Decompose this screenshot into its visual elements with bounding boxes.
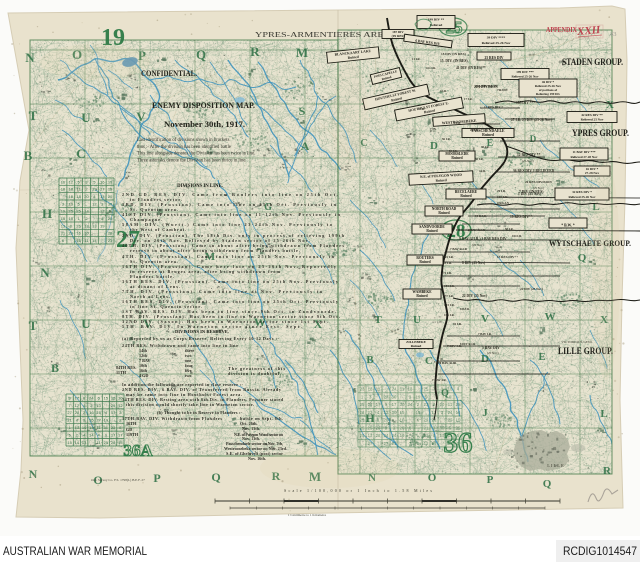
svg-text:2 BAV R.I.R: 2 BAV R.I.R	[468, 228, 486, 232]
svg-text:Relieved 25-26 Nov: Relieved 25-26 Nov	[568, 195, 595, 199]
svg-text:15: 15	[400, 410, 405, 415]
svg-text:17TH BAV. DIV. Withdrawn from: 17TH BAV. DIV. Withdrawn from Flanders	[122, 416, 222, 421]
svg-text:25: 25	[360, 425, 365, 430]
svg-text:30: 30	[440, 402, 445, 407]
svg-text:(26 Nov): (26 Nov)	[503, 261, 514, 265]
svg-text:42 RES DIV **: 42 RES DIV **	[581, 113, 603, 117]
svg-text:* B.W. *: * B.W. *	[561, 223, 575, 227]
svg-text:two: two	[185, 373, 192, 378]
svg-text:18: 18	[368, 387, 373, 392]
svg-text:B: B	[24, 148, 33, 163]
svg-text:11: 11	[448, 402, 453, 407]
svg-text:25 RES DIV: 25 RES DIV	[485, 56, 504, 60]
svg-text:22: 22	[111, 425, 115, 430]
svg-text:30 I.R.: 30 I.R.	[481, 145, 490, 149]
svg-text:11: 11	[400, 387, 405, 392]
svg-text:41 DIV (IN RES)**: 41 DIV (IN RES)**	[456, 66, 486, 70]
svg-text:8 DIV R.I.R: 8 DIV R.I.R	[460, 342, 476, 346]
svg-text:T: T	[374, 314, 382, 326]
svg-text:Ruined: Ruined	[419, 260, 430, 264]
svg-text:E: E	[538, 351, 545, 363]
svg-text:AUSTRALIAN WAR MEMORIAL: AUSTRALIAN WAR MEMORIAL	[3, 546, 148, 558]
svg-text:27: 27	[384, 394, 389, 399]
svg-text:U: U	[413, 314, 421, 326]
svg-text:Q: Q	[578, 252, 587, 264]
svg-text:13: 13	[89, 425, 94, 430]
svg-text:100 I.R.: 100 I.R.	[497, 195, 508, 199]
svg-text:21: 21	[61, 231, 66, 236]
svg-text:15 RES DIV++: 15 RES DIV++	[497, 255, 518, 259]
svg-text:16: 16	[96, 410, 101, 415]
svg-text:15. DIV. (IN RES): 15. DIV. (IN RES)	[440, 59, 468, 63]
svg-text:12: 12	[424, 441, 429, 446]
svg-text:2: 2	[76, 432, 78, 437]
svg-text:R: R	[250, 44, 260, 59]
svg-text:DIVISIONS IN RESERVE.: DIVISIONS IN RESERVE.	[175, 329, 229, 334]
svg-text:V: V	[136, 109, 146, 124]
svg-text:16: 16	[400, 433, 405, 438]
svg-text:12: 12	[384, 410, 389, 415]
svg-text:25: 25	[424, 387, 429, 392]
svg-text:25: 25	[456, 425, 461, 430]
svg-text:Three asterisks denote the Div: Three asterisks denote the Division has …	[137, 158, 247, 163]
svg-text:11 BAV DIV ***: 11 BAV DIV ***	[573, 150, 596, 154]
svg-text:3 I.R.: 3 I.R.	[440, 89, 447, 93]
svg-text:93 I.R.: 93 I.R.	[443, 261, 452, 265]
svg-text:23: 23	[69, 231, 74, 236]
svg-text:29: 29	[448, 418, 453, 423]
svg-text:1 Centimetre to 1 Kilometre: 1 Centimetre to 1 Kilometre	[288, 513, 327, 517]
svg-text:29 I.R.: 29 I.R.	[497, 189, 506, 193]
svg-text:15: 15	[111, 395, 116, 400]
svg-text:2: 2	[119, 418, 121, 423]
svg-text:14: 14	[92, 238, 97, 243]
svg-text:14: 14	[84, 209, 89, 214]
svg-text:36A: 36A	[123, 441, 153, 460]
svg-text:4 GD: 4 GD	[139, 373, 148, 378]
svg-text:Ruined: Ruined	[416, 294, 427, 298]
svg-text:23: 23	[424, 402, 429, 407]
svg-text:13: 13	[100, 194, 105, 199]
svg-text:YPRES GROUP.: YPRES GROUP.	[572, 128, 629, 138]
svg-text:Ruined: Ruined	[451, 156, 462, 160]
svg-text:B: B	[366, 354, 374, 366]
svg-text:1 DIV (25 Nov): 1 DIV (25 Nov)	[518, 192, 542, 196]
svg-text:M: M	[296, 45, 308, 60]
svg-text:18: 18	[69, 194, 74, 199]
svg-text:21: 21	[424, 425, 429, 430]
svg-text:Q: Q	[196, 47, 206, 62]
svg-text:10: 10	[69, 216, 74, 221]
svg-text:B: B	[51, 361, 59, 375]
svg-text:D: D	[430, 140, 438, 152]
svg-text:10: 10	[82, 425, 87, 430]
svg-text:13: 13	[84, 223, 89, 228]
svg-text:25: 25	[69, 209, 74, 214]
svg-text:19: 19	[61, 209, 66, 214]
svg-text:reserve in about after being w: reserve in about after being withdrawn f…	[130, 248, 300, 253]
svg-text:21: 21	[67, 418, 72, 423]
svg-text:(b) Thought to be in Reserve: (b) Thought to be in Reserve in Flanders…	[157, 410, 243, 415]
svg-text:28: 28	[108, 231, 113, 236]
svg-text:Ruined: Ruined	[482, 133, 495, 137]
svg-text:25: 25	[456, 402, 461, 407]
svg-text:12 RES DIV **: 12 RES DIV **	[517, 153, 541, 157]
svg-text:50 I.R.: 50 I.R.	[449, 149, 458, 153]
svg-text:N: N	[40, 265, 50, 280]
svg-text:Ruined: Ruined	[426, 229, 437, 233]
svg-text:U: U	[81, 316, 91, 331]
svg-text:36 RES DIV ? RELIEVED: 36 RES DIV ? RELIEVED	[513, 169, 555, 173]
svg-text:DIVISIONS IN LINE.: DIVISIONS IN LINE.	[177, 184, 223, 189]
svg-text:17: 17	[111, 410, 115, 415]
svg-text:A: A	[301, 139, 310, 153]
svg-text:(25 Nov): (25 Nov)	[533, 186, 544, 190]
svg-text:U: U	[81, 110, 91, 125]
svg-text:22 DIV (25 Nov): 22 DIV (25 Nov)	[462, 294, 488, 298]
svg-text:Q: Q	[543, 478, 552, 490]
svg-text:9 BAV (4 I.R.) 1 BAV RES DIV: 9 BAV (4 I.R.) 1 BAV RES DIV	[459, 237, 507, 241]
svg-text:15: 15	[104, 395, 109, 400]
svg-text:185 DIV ***: 185 DIV ***	[516, 101, 535, 105]
svg-text:N: N	[25, 50, 35, 65]
svg-text:7 BAV I.R.: 7 BAV I.R.	[478, 332, 492, 336]
svg-text:This line alongside denotes th: This line alongside denotes the Division…	[137, 152, 255, 157]
svg-text:LILLE: LILLE	[547, 463, 565, 468]
svg-text:5 BAV. DIV: 5 BAV. DIV	[482, 346, 500, 350]
svg-text:26A DIVISION: 26A DIVISION	[475, 84, 498, 88]
svg-text:27: 27	[100, 187, 105, 192]
svg-text:17: 17	[376, 402, 381, 407]
svg-text:(IN RES): (IN RES)	[392, 34, 405, 38]
svg-text:119TH: 119TH	[126, 432, 139, 437]
svg-text:20: 20	[108, 194, 113, 199]
svg-text:17: 17	[75, 395, 79, 400]
svg-text:W: W	[545, 311, 556, 323]
svg-text:25: 25	[360, 402, 365, 407]
svg-text:26: 26	[400, 425, 405, 430]
svg-text:2 I.R.: 2 I.R.	[454, 121, 461, 125]
svg-text:November 30th, 1917.: November 30th, 1917.	[164, 120, 245, 129]
svg-text:14: 14	[75, 440, 80, 445]
svg-text:16TH: 16TH	[126, 421, 137, 426]
svg-text:R: R	[603, 465, 612, 477]
svg-text:Relieved 27-28 Nov: Relieved 27-28 Nov	[570, 155, 597, 159]
svg-text:13: 13	[69, 201, 74, 206]
svg-text:12: 12	[118, 403, 122, 408]
svg-text:(26 Nov): (26 Nov)	[472, 243, 484, 247]
svg-text:24: 24	[384, 433, 389, 438]
svg-text:22: 22	[368, 410, 373, 415]
svg-text:P: P	[153, 471, 160, 485]
svg-text:27-28 Nov: 27-28 Nov	[585, 171, 600, 175]
svg-text:17: 17	[368, 418, 373, 423]
svg-text:15: 15	[61, 216, 66, 221]
svg-text:30: 30	[392, 410, 397, 415]
svg-text:7 BAV I.R.: 7 BAV I.R.	[432, 378, 447, 382]
svg-text:STADEN GROUP.: STADEN GROUP.	[562, 57, 623, 67]
svg-text:13: 13	[96, 403, 101, 408]
svg-text:17: 17	[100, 209, 105, 214]
svg-text:P: P	[487, 474, 494, 486]
svg-text:30: 30	[118, 395, 123, 400]
svg-text:11 I.R.: 11 I.R.	[412, 57, 421, 61]
svg-text:18: 18	[360, 410, 365, 415]
svg-text:16: 16	[76, 238, 81, 243]
svg-text:19: 19	[92, 187, 97, 192]
svg-text:26: 26	[76, 223, 81, 228]
svg-text:16: 16	[400, 418, 405, 423]
svg-text:13: 13	[75, 425, 80, 430]
svg-text:153 I.R.: 153 I.R.	[444, 284, 455, 288]
svg-text:6 I.R.: 6 I.R.	[418, 107, 425, 111]
svg-text:T: T	[29, 108, 38, 123]
svg-text:L: L	[600, 408, 607, 420]
svg-text:26: 26	[432, 441, 437, 446]
svg-text:Relieved 25 Nov: Relieved 25 Nov	[581, 117, 604, 121]
svg-text:27 I.R. 25 DIV (25-26 Nov): 27 I.R. 25 DIV (25-26 Nov)	[511, 118, 553, 122]
svg-text:18: 18	[456, 410, 461, 415]
svg-text:27: 27	[96, 418, 100, 423]
svg-text:thus :- After the division has: thus :- After the division has been iden…	[137, 145, 231, 150]
svg-text:D: D	[530, 134, 537, 144]
svg-text:13: 13	[368, 433, 373, 438]
svg-text:11: 11	[448, 433, 453, 438]
svg-text:13: 13	[448, 387, 453, 392]
svg-text:26: 26	[376, 425, 381, 430]
svg-text:56 I.R.: 56 I.R.	[442, 137, 451, 141]
svg-text:30: 30	[400, 402, 405, 407]
svg-text:30 I.R.: 30 I.R.	[475, 157, 484, 161]
svg-text:O: O	[428, 472, 437, 484]
svg-text:27: 27	[67, 410, 71, 415]
svg-text:S: S	[299, 104, 306, 118]
svg-text:V: V	[481, 313, 489, 325]
svg-text:19: 19	[108, 179, 113, 184]
svg-text:15 DIV (IN RES): 15 DIV (IN RES)	[441, 52, 466, 56]
svg-text:19: 19	[416, 410, 421, 415]
svg-text:this division would shortly ta: this division would shortly take line in…	[126, 402, 254, 407]
svg-text:Relieving 199 Div: Relieving 199 Div	[536, 92, 560, 96]
svg-text:Ruined: Ruined	[411, 344, 422, 348]
svg-text:72 I.R.: 72 I.R.	[443, 271, 452, 275]
svg-text:29: 29	[111, 403, 116, 408]
svg-text:25: 25	[368, 425, 373, 430]
svg-text:20: 20	[84, 194, 89, 199]
svg-text:25: 25	[360, 433, 365, 438]
svg-text:Nov. 13th.: Nov. 13th.	[242, 426, 260, 431]
svg-text:104 I.R.: 104 I.R.	[512, 234, 522, 238]
svg-text:Ruined: Ruined	[460, 194, 471, 198]
svg-text:16: 16	[100, 179, 105, 184]
svg-text:15: 15	[456, 418, 461, 423]
svg-text:13: 13	[61, 223, 66, 228]
svg-text:Last identification of divisio: Last identification of divisions shown i…	[137, 138, 230, 143]
svg-text:7 IN: 7 IN	[430, 127, 437, 131]
svg-text:X: X	[606, 99, 614, 111]
svg-text:J: J	[482, 407, 488, 419]
svg-text:27: 27	[368, 441, 373, 446]
svg-text:27: 27	[384, 441, 389, 446]
svg-text:25: 25	[89, 418, 94, 423]
svg-text:18: 18	[76, 194, 81, 199]
svg-text:17 I.R.: 17 I.R.	[464, 97, 473, 101]
svg-text:23: 23	[360, 387, 365, 392]
svg-text:13: 13	[92, 223, 97, 228]
svg-text:Nov. 16th.: Nov. 16th.	[248, 456, 266, 461]
svg-text:H: H	[42, 206, 52, 221]
svg-text:12: 12	[69, 179, 74, 184]
svg-text:12: 12	[424, 433, 429, 438]
svg-text:17: 17	[392, 402, 397, 407]
svg-text:St. Quentin area.: St. Quentin area.	[130, 259, 178, 264]
svg-text:43: 43	[610, 31, 617, 38]
svg-text:Ruined: Ruined	[435, 178, 446, 183]
svg-text:18: 18	[61, 187, 66, 192]
svg-text:28: 28	[111, 440, 116, 445]
svg-text:30: 30	[448, 441, 453, 446]
svg-text:(a) Reported by us as Corps Re: (a) Reported by us as Corps Reserve, Rel…	[122, 336, 280, 341]
svg-text:24: 24	[392, 387, 397, 392]
svg-text:16: 16	[76, 231, 81, 236]
svg-text:17: 17	[118, 432, 122, 437]
svg-text:10: 10	[84, 231, 89, 236]
svg-text:C: C	[76, 146, 85, 161]
svg-text:Ruined: Ruined	[438, 211, 449, 215]
svg-text:2: 2	[83, 410, 85, 415]
svg-text:32 RES DIV *: 32 RES DIV *	[572, 190, 592, 194]
svg-text:155 I.R.: 155 I.R.	[443, 255, 454, 259]
svg-text:division is doubtful.: division is doubtful.	[228, 371, 281, 376]
svg-text:26 I.R.: 26 I.R.	[470, 128, 479, 132]
svg-text:199 DIV ***: 199 DIV ***	[516, 70, 534, 74]
svg-text:C: C	[425, 355, 433, 367]
svg-text:17: 17	[75, 403, 79, 408]
svg-text:16: 16	[61, 179, 66, 184]
svg-text:YPRES-ARMENTIERES AREA: YPRES-ARMENTIERES AREA	[255, 30, 392, 39]
svg-text:17: 17	[440, 433, 445, 438]
svg-text:(25 Nov): (25 Nov)	[522, 159, 534, 163]
svg-text:Ord. Survey Co. F.S. 1798(L) B: Ord. Survey Co. F.S. 1798(L) B.E.F. 27	[91, 478, 145, 482]
svg-text:20: 20	[384, 418, 389, 423]
svg-text:30: 30	[392, 394, 397, 399]
svg-text:25: 25	[76, 209, 81, 214]
svg-text:4 G I.R.: 4 G I.R.	[426, 66, 436, 70]
svg-text:13: 13	[408, 387, 413, 392]
svg-text:(25 Nov): (25 Nov)	[487, 351, 499, 355]
svg-text:30: 30	[440, 425, 445, 430]
svg-text:19: 19	[416, 394, 421, 399]
svg-text:CONFIDENTIAL.: CONFIDENTIAL.	[141, 69, 197, 78]
svg-text:25: 25	[104, 440, 109, 445]
svg-text:4 I.R.: 4 I.R.	[479, 169, 486, 173]
svg-text:24: 24	[448, 410, 453, 415]
svg-text:APPENDIX: APPENDIX	[546, 26, 577, 34]
svg-text:N: N	[29, 467, 38, 481]
svg-text:VICTORIOUS GENL: VICTORIOUS GENL	[561, 340, 592, 344]
svg-text:103 I.R.: 103 I.R.	[444, 303, 455, 307]
svg-text:12: 12	[92, 201, 97, 206]
svg-text:16: 16	[89, 410, 94, 415]
svg-text:8 DIV (25 Nov): 8 DIV (25 Nov)	[462, 261, 486, 265]
svg-text:21: 21	[392, 441, 397, 446]
svg-text:20: 20	[108, 216, 113, 221]
svg-text:19 RES DIV**: 19 RES DIV**	[510, 215, 533, 219]
svg-text:24: 24	[408, 402, 413, 407]
svg-text:94 R.I.R: 94 R.I.R	[475, 214, 487, 218]
svg-text:19: 19	[100, 223, 105, 228]
svg-text:24: 24	[89, 395, 94, 400]
svg-text:28: 28	[376, 433, 381, 438]
svg-text:11: 11	[376, 387, 381, 392]
svg-text:7: 7	[69, 403, 71, 408]
svg-text:10 BAV. R.IR: 10 BAV. R.IR	[438, 361, 457, 365]
svg-text:15: 15	[108, 187, 113, 192]
svg-text:T: T	[29, 318, 38, 333]
svg-text:20: 20	[75, 410, 80, 415]
svg-text:RCDIG1014547: RCDIG1014547	[563, 546, 637, 558]
svg-text:2: 2	[90, 403, 92, 408]
svg-text:19: 19	[104, 418, 109, 423]
svg-text:Q: Q	[211, 470, 220, 484]
svg-text:106 I.R.: 106 I.R.	[460, 307, 470, 311]
svg-text:15: 15	[118, 440, 123, 445]
svg-text:17: 17	[111, 432, 115, 437]
svg-text:26 RES DIVISION: 26 RES DIVISION	[525, 180, 552, 184]
svg-text:39 DIV ****: 39 DIV ****	[487, 36, 506, 40]
svg-text:18: 18	[69, 187, 74, 192]
svg-text:ORGAN: ORGAN	[497, 201, 510, 205]
svg-text:29: 29	[424, 418, 429, 423]
svg-text:26: 26	[368, 402, 373, 407]
svg-text:ENEMY DISPOSITION MAP.: ENEMY DISPOSITION MAP.	[152, 101, 255, 110]
svg-text:29: 29	[360, 418, 365, 423]
svg-text:22 DIV (25 Nov): 22 DIV (25 Nov)	[520, 287, 543, 291]
svg-text:11 RES DIV +: 11 RES DIV +	[484, 105, 503, 109]
svg-text:24: 24	[392, 433, 397, 438]
svg-text:13: 13	[82, 440, 87, 445]
svg-text:Relieved 25-26 Nov: Relieved 25-26 Nov	[511, 74, 538, 78]
svg-text:the West of Cambrai.: the West of Cambrai.	[130, 227, 186, 232]
svg-text:92 I.R.: 92 I.R.	[453, 322, 462, 326]
svg-text:14: 14	[89, 432, 94, 437]
svg-text:11TH: 11TH	[116, 370, 127, 375]
svg-text:165 I.R.: 165 I.R.	[444, 313, 455, 317]
svg-text:23: 23	[108, 238, 113, 243]
svg-text:15: 15	[67, 440, 72, 445]
svg-text:7th DIV: 7th DIV	[497, 88, 509, 92]
svg-text:177 I.R.: 177 I.R.	[443, 294, 454, 298]
svg-text:58 I.R.: 58 I.R.	[505, 227, 514, 231]
svg-text:Relieved 25-26 Nov: Relieved 25-26 Nov	[482, 41, 511, 45]
svg-text:7 BAV R.I.R: 7 BAV R.I.R	[450, 247, 468, 251]
svg-text:30: 30	[108, 201, 113, 206]
